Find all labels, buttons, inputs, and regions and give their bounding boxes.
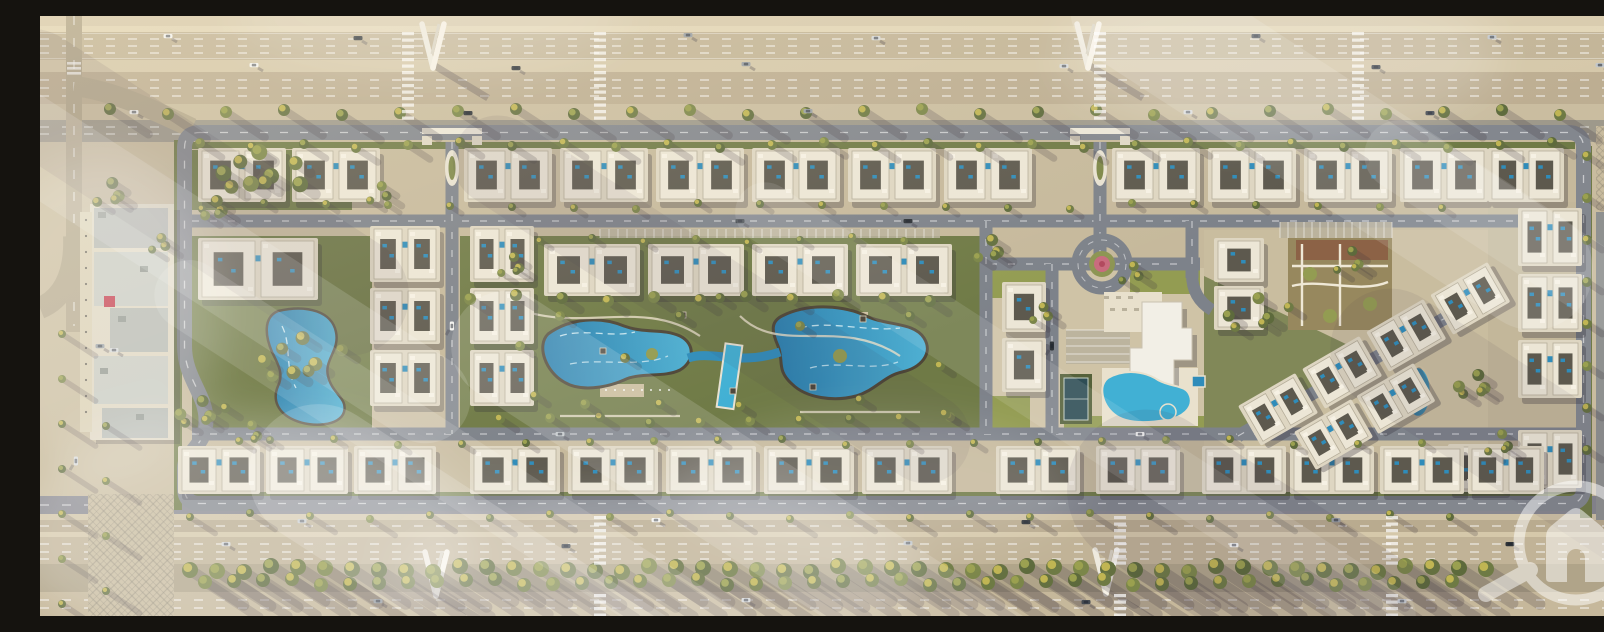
aerial-masterplan-render: [40, 16, 1604, 616]
sun-glare: [40, 16, 1604, 616]
masterplan-canvas: [40, 16, 1604, 616]
